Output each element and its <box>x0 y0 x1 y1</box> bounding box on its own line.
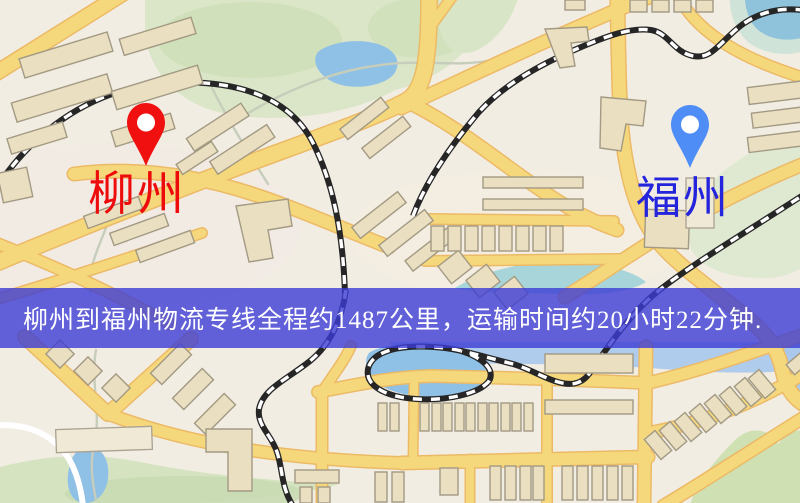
destination-pin-shape <box>671 105 709 168</box>
destination-marker[interactable] <box>670 104 710 170</box>
origin-pin-hole <box>137 114 155 132</box>
destination-pin-hole <box>681 116 699 134</box>
destination-pin-icon <box>670 104 710 170</box>
origin-pin-shape <box>127 103 165 166</box>
destination-label: 福州 <box>636 176 730 221</box>
logistics-route-map: 柳州 福州 柳州到福州物流专线全程约1487公里，运输时间约20小时22分钟. <box>0 0 800 503</box>
origin-pin-icon <box>126 102 166 168</box>
route-banner-text: 柳州到福州物流专线全程约1487公里，运输时间约20小时22分钟. <box>0 300 762 336</box>
route-banner: 柳州到福州物流专线全程约1487公里，运输时间约20小时22分钟. <box>0 288 800 348</box>
origin-marker[interactable] <box>126 102 166 168</box>
map-background <box>0 0 800 503</box>
origin-label: 柳州 <box>88 172 186 219</box>
